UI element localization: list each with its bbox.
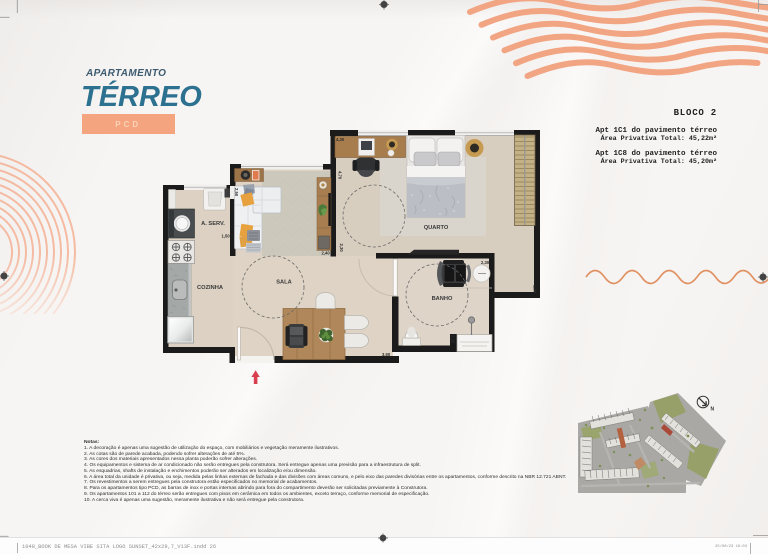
svg-text:2,40: 2,40	[322, 251, 331, 256]
svg-text:SALA: SALA	[276, 280, 291, 286]
svg-text:2,30: 2,30	[481, 260, 490, 265]
svg-text:1,50: 1,50	[222, 234, 231, 239]
svg-text:3,90: 3,90	[382, 352, 391, 357]
svg-text:4,30: 4,30	[336, 137, 345, 142]
svg-text:2,50: 2,50	[234, 188, 239, 197]
svg-text:N: N	[711, 407, 715, 413]
svg-text:1,98: 1,98	[533, 285, 538, 294]
svg-text:BANHO: BANHO	[432, 296, 453, 302]
svg-text:A. SERV.: A. SERV.	[201, 221, 225, 227]
svg-text:COZINHA: COZINHA	[197, 285, 223, 291]
svg-text:QUARTO: QUARTO	[424, 225, 449, 231]
svg-text:4,70: 4,70	[338, 171, 343, 180]
svg-text:2,30: 2,30	[339, 244, 344, 253]
svg-text:2,20: 2,20	[451, 335, 456, 344]
